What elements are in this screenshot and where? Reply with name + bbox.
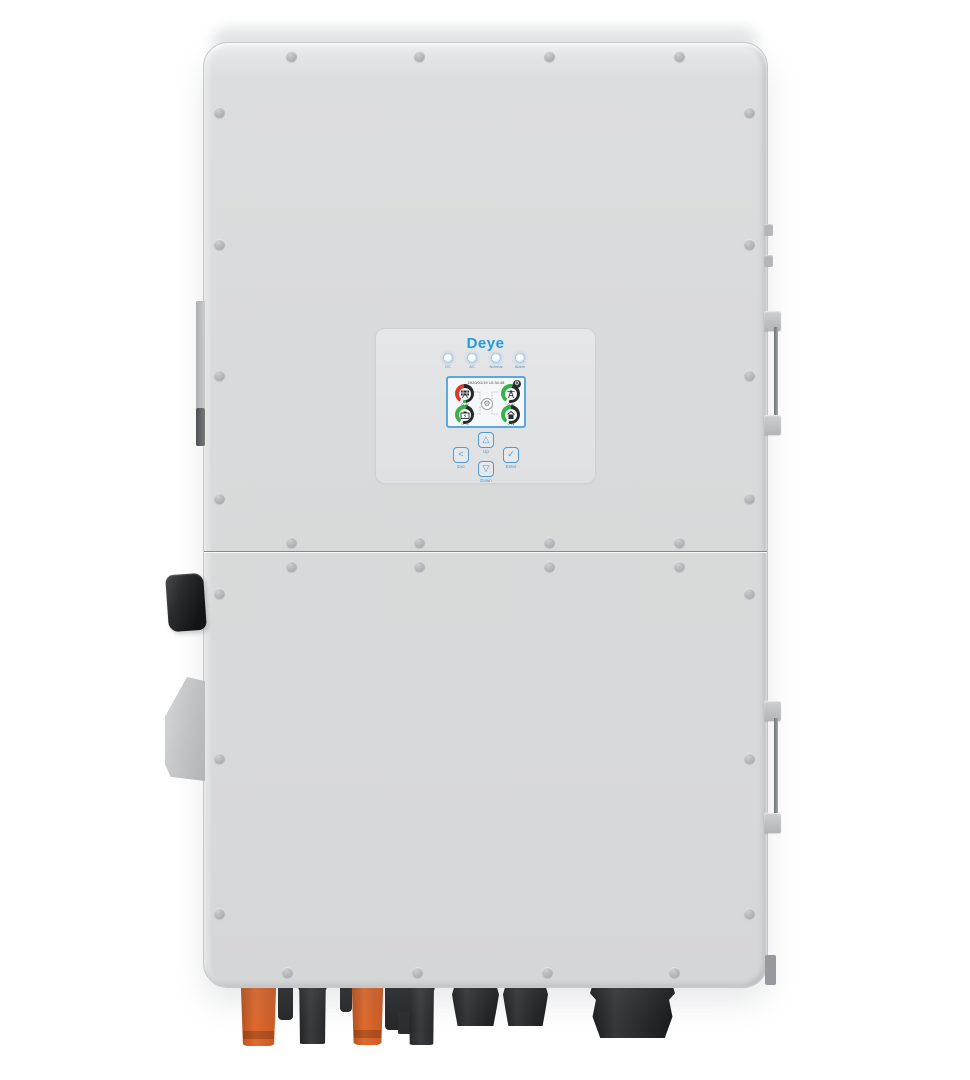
mc4-connector-black xyxy=(406,982,437,1045)
screw-icon xyxy=(669,967,680,978)
screw-icon xyxy=(214,239,225,250)
screw-icon xyxy=(674,561,685,572)
down-button[interactable]: ▽ xyxy=(478,461,494,477)
brand-logo: Deye xyxy=(376,335,595,352)
screw-icon xyxy=(412,967,423,978)
handle-right-upper-bracket xyxy=(764,311,781,331)
carry-handle-left xyxy=(165,677,205,781)
normal-led-label: Normal xyxy=(483,364,509,369)
esc-button[interactable]: < xyxy=(453,447,469,463)
home-load-icon xyxy=(506,410,516,420)
handle-right-lower-bar xyxy=(774,718,778,816)
handle-right-upper-bar xyxy=(774,327,778,419)
battery-value: 0 % xyxy=(452,422,478,426)
handle-right-upper-bracket xyxy=(764,415,781,435)
screw-icon xyxy=(414,561,425,572)
screw-icon xyxy=(286,51,297,62)
inverter-case: Deye DC AC Normal Alarm 2020/01/19 10:34… xyxy=(203,42,768,988)
side-tab-right xyxy=(764,224,773,236)
grid-gauge xyxy=(501,384,520,403)
screw-icon xyxy=(544,51,555,62)
solar-value: 0 W xyxy=(452,403,478,407)
screw-icon xyxy=(744,753,755,764)
ac-led-icon xyxy=(468,354,476,362)
normal-led-icon xyxy=(492,354,500,362)
case-seam xyxy=(204,551,767,552)
cable-gland xyxy=(452,982,499,1026)
dc-led-label: DC xyxy=(435,364,461,369)
dc-led-icon xyxy=(444,354,452,362)
large-cable-gland xyxy=(590,982,675,1038)
screw-icon xyxy=(544,561,555,572)
up-button[interactable]: △ xyxy=(478,432,494,448)
esc-button-label: Esc xyxy=(449,464,473,469)
screw-icon xyxy=(744,239,755,250)
mc4-connector-black xyxy=(296,982,329,1044)
screw-icon xyxy=(214,753,225,764)
mc4-connector-orange xyxy=(240,982,277,1046)
screw-icon xyxy=(214,370,225,381)
screw-icon xyxy=(282,967,293,978)
screw-icon xyxy=(286,561,297,572)
screw-icon xyxy=(674,51,685,62)
alarm-led-icon xyxy=(516,354,524,362)
grid-value: 0 W xyxy=(498,403,524,407)
battery-icon xyxy=(460,410,470,420)
lcd-screen: 2020/01/19 10:34:48 ⚙ ⚙ xyxy=(446,376,526,428)
ac-led-label: AC xyxy=(459,364,485,369)
screw-icon xyxy=(414,537,425,548)
mc4-connector-orange xyxy=(351,982,384,1045)
screw-icon xyxy=(744,908,755,919)
screw-icon xyxy=(542,967,553,978)
alarm-led-label: Alarm xyxy=(507,364,533,369)
screw-icon xyxy=(744,493,755,504)
screw-icon xyxy=(286,537,297,548)
screw-icon xyxy=(214,908,225,919)
screw-icon xyxy=(744,107,755,118)
screw-icon xyxy=(744,370,755,381)
inverter-icon: ⚙ xyxy=(481,398,493,410)
cable-gland xyxy=(503,982,548,1026)
screw-icon xyxy=(214,588,225,599)
load-value: 0 W xyxy=(498,422,524,426)
enter-button-label: Enter xyxy=(499,464,523,469)
handle-right-lower-bracket xyxy=(764,813,781,833)
solar-gauge xyxy=(455,384,474,403)
handle-right-lower-bracket xyxy=(764,701,781,721)
mount-rail-left-tip xyxy=(196,408,205,446)
screw-icon xyxy=(544,537,555,548)
control-panel: Deye DC AC Normal Alarm 2020/01/19 10:34… xyxy=(376,329,595,483)
enter-button[interactable]: ✓ xyxy=(503,447,519,463)
screw-icon xyxy=(744,588,755,599)
screw-icon xyxy=(674,537,685,548)
screw-icon xyxy=(214,493,225,504)
screw-icon xyxy=(214,107,225,118)
power-grid-icon xyxy=(506,389,516,399)
side-tab-bottom-right xyxy=(765,955,776,985)
up-button-label: Up xyxy=(474,449,498,454)
solar-panel-icon xyxy=(460,389,470,399)
down-button-label: Down xyxy=(474,478,498,483)
product-photo: Deye DC AC Normal Alarm 2020/01/19 10:34… xyxy=(0,0,970,1080)
side-tab-right xyxy=(764,255,773,267)
screw-icon xyxy=(414,51,425,62)
dc-switch-knob[interactable] xyxy=(165,573,207,633)
